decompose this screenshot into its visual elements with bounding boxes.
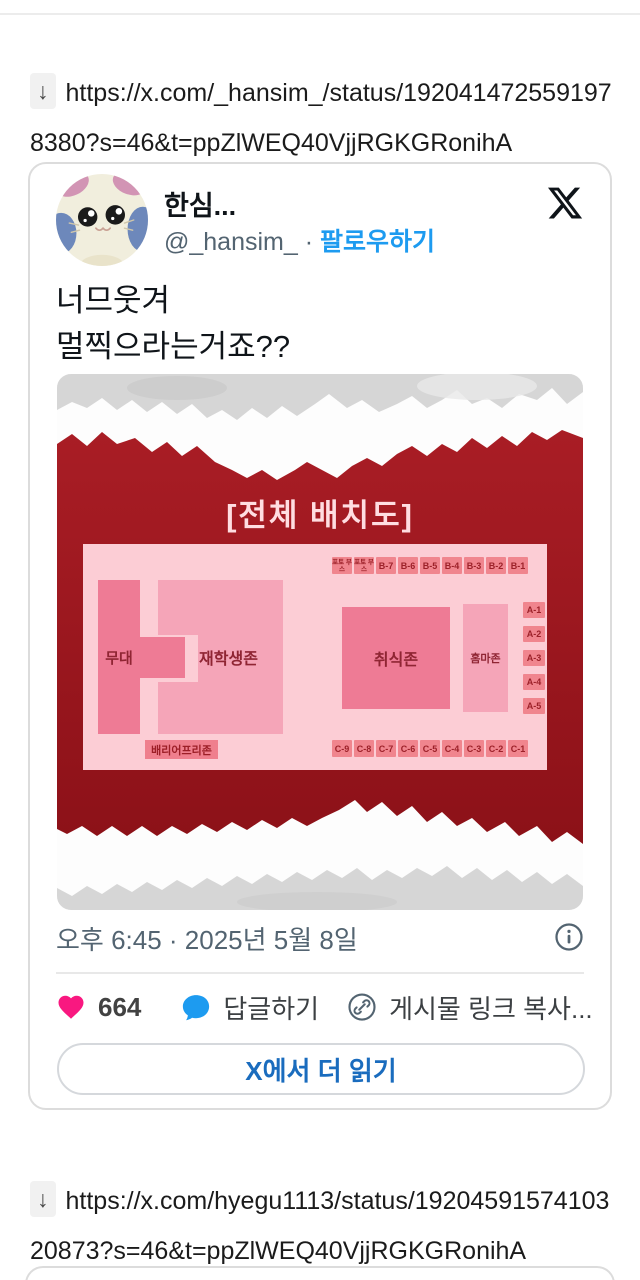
seat-box: B-7 [376,557,396,574]
url-text[interactable]: https://x.com/_hansim_/status/1920414725… [30,79,612,157]
handle-row: @_hansim_ · 팔로우하기 [164,222,435,258]
like-count: 664 [98,992,141,1023]
copy-link-icon[interactable] [347,992,377,1022]
seat-box: C-1 [508,740,528,757]
booth-b-row: 포토 부스포토 부스B-7B-6B-5B-4B-3B-2B-1 [332,557,528,574]
venue-map: 무대 재학생존 취식존 홈마존 배리어프리존 포토 부스포토 부스B-7B-6B… [83,544,547,770]
page: ↓https://x.com/_hansim_/status/192041472… [0,0,640,1280]
seat-box: A-2 [523,626,545,642]
zone-food: 취식존 [342,607,450,709]
seat-box: A-5 [523,698,545,714]
next-tweet-card-partial [25,1266,615,1280]
read-more-button[interactable]: X에서 더 읽기 [57,1043,585,1095]
seat-box: C-8 [354,740,374,757]
zone-barrier-free: 배리어프리존 [145,740,218,759]
download-arrow-icon: ↓ [30,1181,56,1217]
seat-box: A-1 [523,602,545,618]
seat-box: A-3 [523,650,545,666]
seat-box: C-4 [442,740,462,757]
seat-box: B-6 [398,557,418,574]
seat-box: B-1 [508,557,528,574]
poster-title: [전체 배치도] [57,490,583,535]
source-url-1[interactable]: ↓https://x.com/_hansim_/status/192041472… [30,68,618,168]
c-row: C-9C-8C-7C-6C-5C-4C-3C-2C-1 [332,740,528,757]
card-divider [56,972,584,974]
copy-link-group[interactable]: 게시물 링크 복사... [347,989,593,1026]
heart-icon[interactable] [56,992,86,1022]
seat-box: B-2 [486,557,506,574]
url-text[interactable]: https://x.com/hyegu1113/status/192045915… [30,1187,609,1265]
tweet-text: 너므웃겨 멀찍으라는거죠?? [56,278,290,370]
x-logo-icon[interactable] [546,184,584,222]
seat-box: C-9 [332,740,352,757]
reply-group[interactable]: 답글하기 [181,989,319,1026]
copy-link-label[interactable]: 게시물 링크 복사... [389,989,593,1026]
tweet-card: 한심... @_hansim_ · 팔로우하기 너므웃겨 멀찍으라는거죠?? [28,162,612,1110]
tweet-text-line2: 멀찍으라는거죠?? [56,324,290,370]
seat-box: B-3 [464,557,484,574]
reply-bubble-icon[interactable] [181,992,211,1022]
engagement-bar: 664 답글하기 게시물 링크 복사... [56,984,593,1030]
seat-box: 포토 부스 [332,557,352,574]
follow-button[interactable]: 팔로우하기 [320,228,435,256]
tweet-image[interactable]: [전체 배치도] 무대 재학생존 취식존 홈마존 배리어프리존 포토 부스포토 … [57,374,583,910]
seat-box: C-6 [398,740,418,757]
seat-box: C-3 [464,740,484,757]
display-name[interactable]: 한심... [164,184,236,223]
seat-box: C-7 [376,740,396,757]
separator-dot: · [305,228,313,256]
timestamp: 오후 6:45 · 2025년 5월 8일 [56,920,358,957]
reply-label[interactable]: 답글하기 [223,989,319,1026]
source-url-2[interactable]: ↓https://x.com/hyegu1113/status/19204591… [30,1176,618,1276]
a-column: A-1A-2A-3A-4A-5 [523,602,545,714]
zone-stage: 무대 [98,580,140,734]
like-group[interactable]: 664 [56,992,141,1023]
seat-box: B-5 [420,557,440,574]
handle[interactable]: @_hansim_ [164,228,298,256]
seat-box: A-4 [523,674,545,690]
info-icon[interactable] [554,922,584,952]
stage-arm [140,637,185,678]
tweet-text-line1: 너므웃겨 [56,278,290,324]
seat-box: 포토 부스 [354,557,374,574]
download-arrow-icon: ↓ [30,73,56,109]
avatar[interactable] [56,174,148,266]
seat-box: C-5 [420,740,440,757]
zone-homma: 홈마존 [463,604,508,712]
seat-box: C-2 [486,740,506,757]
section-divider [0,13,640,15]
seat-box: B-4 [442,557,462,574]
